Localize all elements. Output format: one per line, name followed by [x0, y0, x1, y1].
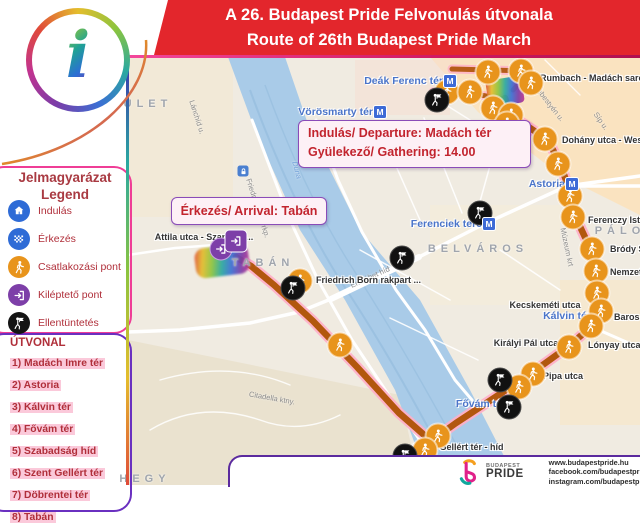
departure-line1: Indulás/ Departure: Madách tér	[308, 124, 530, 143]
join-walker-icon	[8, 256, 30, 278]
metro-icon[interactable]: M	[373, 105, 387, 119]
title-english: Route of 26th Budapest Pride March	[247, 28, 531, 53]
legend-item-label: Ellentüntetés	[38, 317, 99, 329]
route-list-title: ÚTVONAL	[10, 337, 66, 349]
pride-route-poster: { "header": { "title_hu": "A 26. Budapes…	[0, 0, 640, 485]
title-hungarian: A 26. Budapest Pride Felvonulás útvonala	[225, 3, 553, 28]
join-point-marker[interactable]	[476, 60, 501, 85]
route-list: 1) Madách Imre tér2) Astoria3) Kálvin té…	[10, 353, 105, 529]
join-point-marker[interactable]	[561, 205, 586, 230]
legend-item-label: Csatlakozási pont	[38, 261, 121, 273]
budapest-pride-logo: BUDAPEST PRIDE	[458, 459, 524, 486]
arrival-line1: Érkezés/ Arrival: Tabán	[181, 204, 318, 218]
legend-items: IndulásÉrkezésCsatlakozási pontKiléptető…	[8, 200, 128, 340]
route-stop-2: 2) Astoria	[10, 375, 105, 393]
route-stop-1: 1) Madách Imre tér	[10, 353, 105, 371]
route-stop-5: 5) Szabadság híd	[10, 441, 105, 459]
footer-bar: BUDAPEST PRIDE www.budapestpride.hufaceb…	[228, 455, 640, 487]
legend-item-3: Csatlakozási pont	[8, 256, 128, 278]
exit-point-marker[interactable]	[210, 238, 233, 261]
legend-title: Jelmagyarázat Legend	[0, 170, 130, 204]
counter-protest-marker[interactable]	[425, 88, 450, 113]
info-logo: i	[26, 8, 130, 112]
header-underline	[128, 55, 640, 58]
exit-door-icon	[8, 284, 30, 306]
brand-name-bottom: PRIDE	[486, 469, 524, 481]
finish-flag-icon	[8, 228, 30, 250]
footer-link-1: www.budapestpride.hu	[549, 458, 640, 467]
counter-protest-marker[interactable]	[497, 395, 522, 420]
map-left-frame	[126, 57, 129, 485]
legend-item-1: Indulás	[8, 200, 128, 222]
metro-icon[interactable]: M	[565, 177, 579, 191]
join-point-marker[interactable]	[580, 237, 605, 262]
counter-protest-marker[interactable]	[390, 246, 415, 271]
legend-item-5: Ellentüntetés	[8, 312, 128, 334]
legend-item-label: Kiléptető pont	[38, 289, 102, 301]
join-point-marker[interactable]	[533, 127, 558, 152]
route-stop-6: 6) Szent Gellért tér	[10, 463, 105, 481]
arrival-callout: Érkezés/ Arrival: Tabán	[171, 197, 327, 225]
departure-line2: Gyülekező/ Gathering: 14.00	[308, 143, 530, 162]
route-stop-8: 8) Tabán	[10, 507, 105, 525]
departure-callout: Indulás/ Departure: Madách tér Gyülekező…	[298, 120, 531, 168]
join-point-marker[interactable]	[579, 314, 604, 339]
join-point-marker[interactable]	[328, 333, 353, 358]
lock-icon	[238, 166, 249, 177]
join-point-marker[interactable]	[519, 71, 544, 96]
join-point-marker[interactable]	[557, 335, 582, 360]
info-letter: i	[66, 24, 90, 88]
route-stop-7: 7) Döbrentei tér	[10, 485, 105, 503]
footer-link-2: facebook.com/budapestpride	[549, 467, 640, 476]
start-house-icon	[8, 200, 30, 222]
route-stop-3: 3) Kálvin tér	[10, 397, 105, 415]
header-banner: A 26. Budapest Pride Felvonulás útvonala…	[138, 0, 640, 55]
join-point-marker[interactable]	[546, 152, 571, 177]
legend-item-label: Indulás	[38, 205, 72, 217]
metro-icon[interactable]: M	[482, 217, 496, 231]
footer-links: www.budapestpride.hufacebook.com/budapes…	[549, 458, 640, 486]
metro-icon[interactable]: M	[443, 74, 457, 88]
counter-protest-marker[interactable]	[488, 368, 513, 393]
legend-item-label: Érkezés	[38, 233, 76, 245]
counter-protest-marker[interactable]	[281, 276, 306, 301]
counter-protest-icon	[8, 312, 30, 334]
legend-item-2: Érkezés	[8, 228, 128, 250]
pride-b-icon	[458, 459, 483, 486]
join-point-marker[interactable]	[458, 80, 483, 105]
route-stop-4: 4) Fővám tér	[10, 419, 105, 437]
legend-item-4: Kiléptető pont	[8, 284, 128, 306]
info-logo-inner: i	[32, 14, 124, 106]
